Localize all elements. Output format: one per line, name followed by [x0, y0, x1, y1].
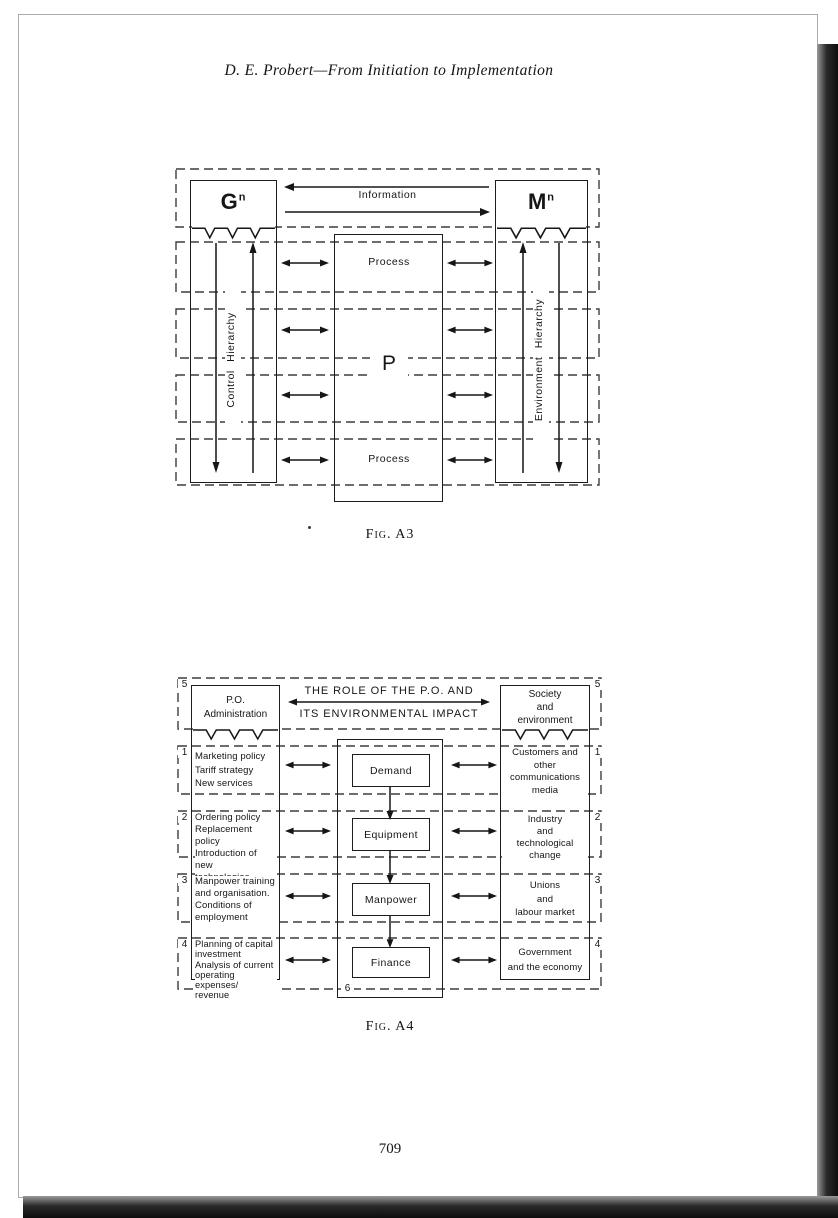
band-number-2-left: 2 — [178, 812, 191, 823]
scan-edge-right — [817, 44, 838, 1218]
band-number-1-right: 1 — [591, 747, 604, 758]
g-node-label: Gn — [192, 189, 275, 215]
title-double-arrow-icon — [287, 696, 491, 708]
po-row-2-text: Ordering policy Replacement policy Intro… — [195, 812, 277, 884]
manpower-box: Manpower — [352, 883, 430, 916]
down-arrow-icon — [384, 916, 396, 948]
po-row-1-text: Marketing policy Tariff strategy New ser… — [195, 750, 277, 791]
po-row-3-text: Manpower training and organisation. Cond… — [195, 876, 277, 924]
env-row-1-text: Customers and other communications media — [502, 747, 588, 797]
band-number-3-right: 3 — [591, 875, 604, 886]
double-arrow-icon — [450, 890, 498, 902]
fig-a4-caption: Fig. A4 — [330, 1019, 450, 1035]
double-arrow-icon — [284, 890, 332, 902]
double-arrow-icon — [280, 454, 330, 466]
double-arrow-icon — [446, 257, 494, 269]
page-number: 709 — [354, 1141, 426, 1158]
control-hierarchy-label: Control Hierarchy — [225, 285, 241, 435]
p-center-label: P — [370, 352, 408, 376]
double-arrow-icon — [450, 825, 498, 837]
env-row-2-text: Industry and technological change — [502, 814, 588, 862]
double-arrow-icon — [284, 759, 332, 771]
m-superscript: n — [547, 192, 555, 204]
g-superscript: n — [239, 192, 247, 204]
double-arrow-icon — [446, 324, 494, 336]
fig-a3-caption: Fig. A3 — [330, 527, 450, 543]
double-arrow-icon — [284, 954, 332, 966]
double-arrow-icon — [280, 389, 330, 401]
m-letter: M — [528, 189, 547, 214]
env-row-3-text: Unions and labour market — [502, 879, 588, 920]
band-number-5-left: 5 — [178, 679, 191, 690]
m-node-label: Mn — [497, 189, 586, 215]
process-top-label: Process — [344, 256, 434, 268]
g-letter: G — [221, 189, 239, 214]
scan-edge-bottom — [23, 1196, 838, 1218]
process-bottom-label: Process — [344, 453, 434, 465]
band-number-4-left: 4 — [178, 939, 191, 950]
double-arrow-icon — [446, 389, 494, 401]
finance-box: Finance — [352, 947, 430, 978]
equipment-box: Equipment — [352, 818, 430, 851]
demand-box: Demand — [352, 754, 430, 787]
env-row-4-text: Government and the economy — [502, 946, 588, 975]
information-label: Information — [310, 189, 465, 201]
band-number-2-right: 2 — [591, 812, 604, 823]
band-number-3-left: 3 — [178, 875, 191, 886]
po-row-4-text: Planning of capital investment Analysis … — [195, 939, 277, 1001]
band-number-1-left: 1 — [178, 747, 191, 758]
zigzag-icon — [193, 726, 278, 742]
po-administration-label: P.O. Administration — [193, 694, 278, 721]
society-environment-label: Society and environment — [502, 688, 588, 727]
center-box-number-6: 6 — [341, 983, 354, 994]
ink-speck — [308, 526, 311, 529]
fig-a4-title-line2: ITS ENVIRONMENTAL IMPACT — [283, 708, 495, 720]
zigzag-icon — [502, 726, 588, 742]
double-arrow-icon — [284, 825, 332, 837]
zigzag-icon — [192, 224, 275, 241]
running-head: D. E. Probert—From Initiation to Impleme… — [119, 62, 659, 80]
zigzag-icon — [497, 224, 586, 241]
band-number-4-right: 4 — [591, 939, 604, 950]
double-arrow-icon — [280, 257, 330, 269]
double-arrow-icon — [450, 759, 498, 771]
down-arrow-icon — [384, 851, 396, 884]
double-arrow-icon — [450, 954, 498, 966]
band-number-5-right: 5 — [591, 679, 604, 690]
double-arrow-icon — [280, 324, 330, 336]
environment-hierarchy-label: Environment Hierarchy — [533, 275, 549, 445]
down-arrow-icon — [384, 787, 396, 820]
scanned-page: D. E. Probert—From Initiation to Impleme… — [0, 0, 838, 1218]
double-arrow-icon — [446, 454, 494, 466]
